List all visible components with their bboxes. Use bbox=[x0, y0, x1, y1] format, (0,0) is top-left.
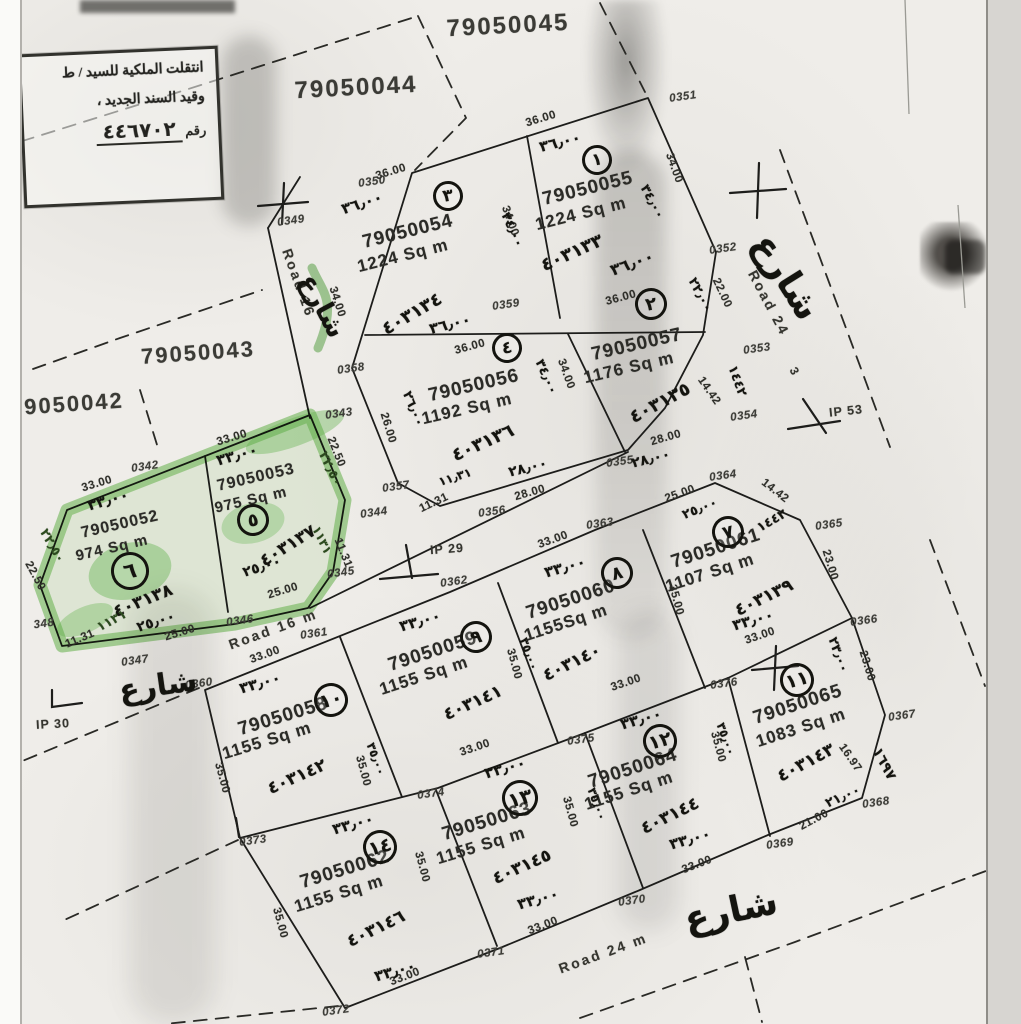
dashed-boundary-45-east bbox=[600, 3, 645, 92]
ip-marker-label: IP 30 bbox=[36, 716, 71, 732]
faint-grid-line bbox=[905, 0, 909, 114]
green-highlighter bbox=[40, 268, 349, 646]
ownership-stamp: انتقلت الملكية للسيد / ط وقيد السند الجد… bbox=[18, 46, 225, 209]
south-divider-64-65 bbox=[728, 678, 770, 836]
scan-right-margin bbox=[986, 0, 1021, 1024]
stamp-line-3: رقم ٤٤٦٧٠٢ bbox=[30, 115, 207, 147]
stamp-line-1: انتقلت الملكية للسيد / ط bbox=[27, 59, 204, 84]
tick-0373 bbox=[236, 818, 239, 837]
ip-marker-label: IP 29 bbox=[430, 541, 465, 557]
tick-ip30 bbox=[52, 690, 82, 707]
dashed-ray-west-2 bbox=[60, 840, 238, 922]
faint-grid-line-2 bbox=[958, 205, 965, 308]
dashed-boundary-east-2 bbox=[930, 540, 985, 686]
dashed-ray-west-3 bbox=[165, 1006, 338, 1024]
cross-road24 bbox=[730, 163, 786, 218]
stamp-deed-number: ٤٤٦٧٠٢ bbox=[96, 116, 182, 146]
dashed-boundary-43-green bbox=[140, 390, 158, 448]
stamp-number-label: رقم bbox=[185, 122, 207, 138]
scanned-cadastral-map: انتقلت الملكية للسيد / ط وقيد السند الجد… bbox=[0, 0, 1021, 1024]
scan-left-margin bbox=[0, 0, 22, 1024]
stamp-line-2: وقيد السند الجديد ، bbox=[29, 88, 206, 113]
dashed-branch-bottom bbox=[745, 957, 762, 1022]
